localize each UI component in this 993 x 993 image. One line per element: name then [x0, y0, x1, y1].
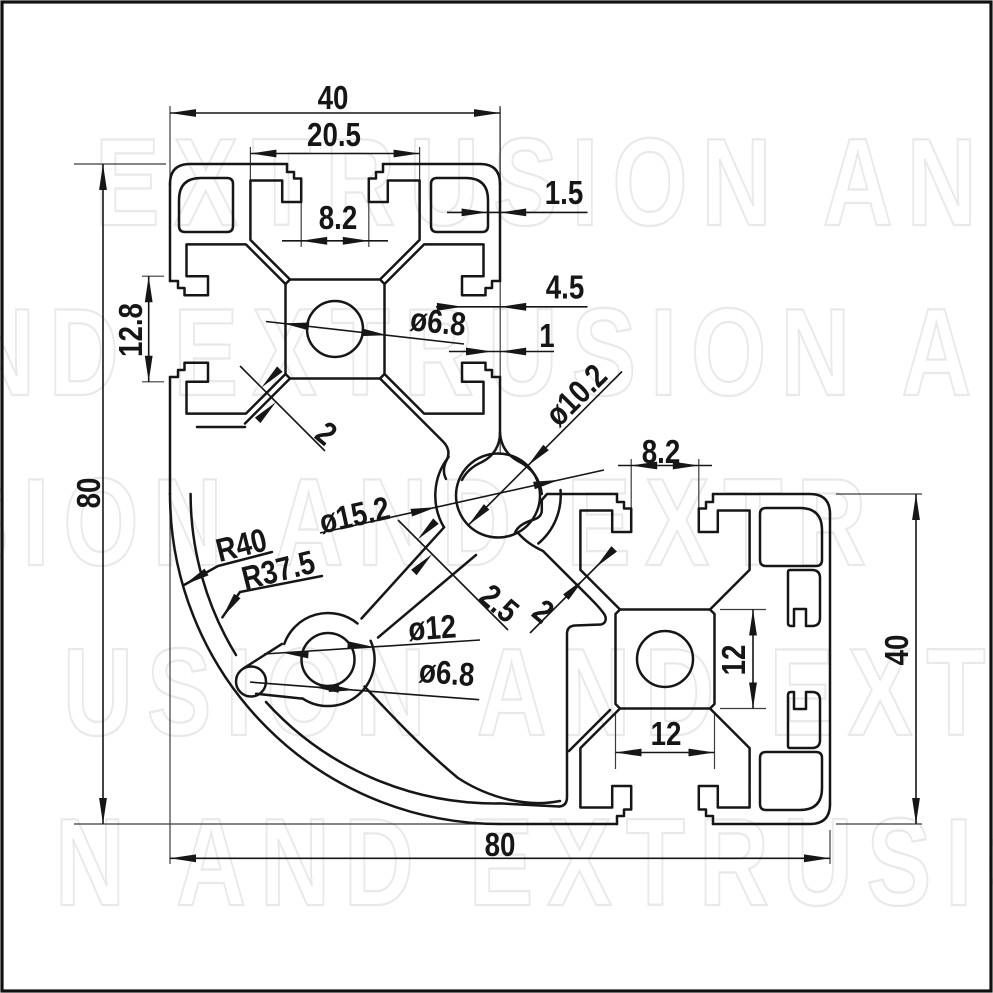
svg-text:80: 80: [71, 478, 108, 509]
svg-text:1: 1: [539, 318, 554, 355]
svg-text:USION AND EXTR: USION AND EXTR: [63, 622, 993, 761]
svg-text:ø6.8: ø6.8: [409, 301, 468, 343]
svg-text:8.2: 8.2: [642, 434, 681, 471]
svg-text:ø12: ø12: [407, 608, 457, 648]
svg-text:1.5: 1.5: [545, 175, 584, 212]
svg-text:ø6.8: ø6.8: [418, 653, 476, 694]
svg-text:12.8: 12.8: [113, 303, 150, 357]
svg-text:12: 12: [651, 716, 682, 753]
svg-text:8.2: 8.2: [319, 200, 358, 237]
svg-text:4.5: 4.5: [546, 269, 585, 306]
svg-text:40: 40: [318, 80, 349, 117]
svg-text:40: 40: [879, 635, 916, 666]
svg-text:12: 12: [716, 645, 753, 676]
svg-text:20.5: 20.5: [307, 117, 361, 154]
svg-text:80: 80: [485, 827, 516, 864]
